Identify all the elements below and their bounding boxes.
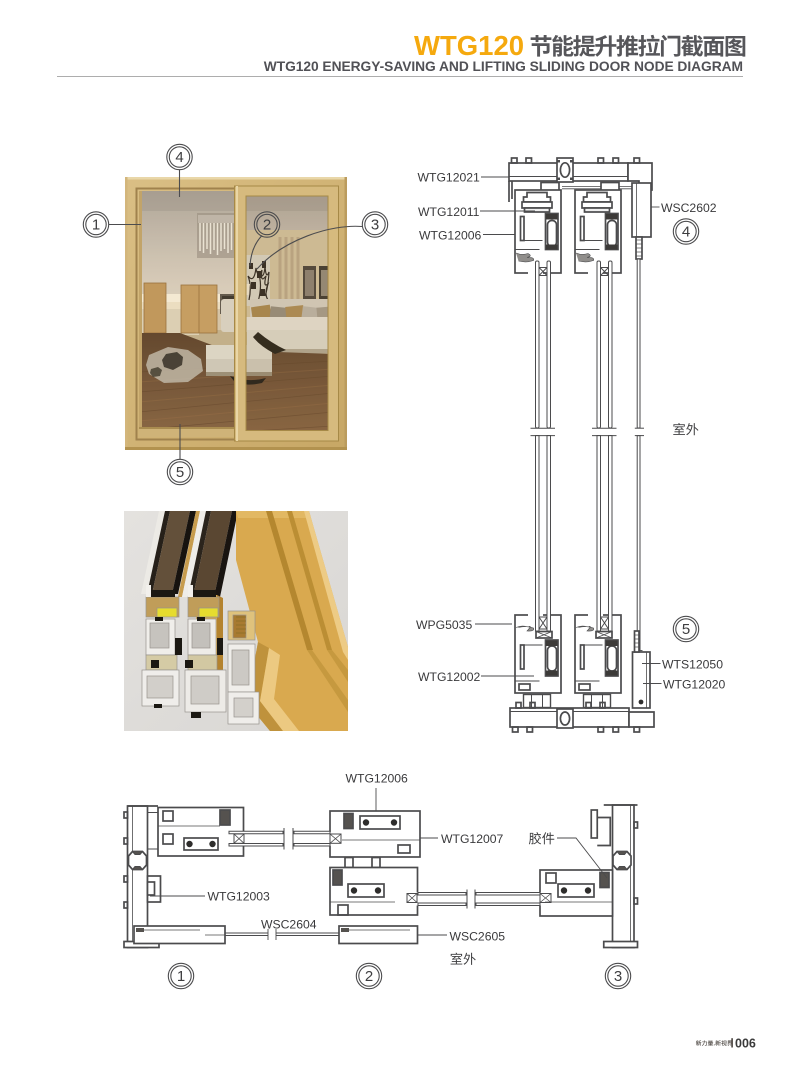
- svg-text:2: 2: [365, 968, 373, 985]
- svg-text:WSC2605: WSC2605: [450, 930, 506, 944]
- svg-text:3: 3: [614, 968, 622, 985]
- svg-text:3: 3: [371, 217, 379, 234]
- svg-text:WTG12006: WTG12006: [419, 229, 482, 243]
- svg-text:WTG12003: WTG12003: [208, 890, 271, 904]
- svg-text:WTG12007: WTG12007: [441, 832, 504, 846]
- svg-text:WTS12050: WTS12050: [662, 658, 723, 672]
- svg-text:WTG12021: WTG12021: [418, 171, 481, 185]
- svg-text:1: 1: [177, 968, 185, 985]
- svg-text:WSC2604: WSC2604: [261, 918, 317, 932]
- svg-text:1: 1: [92, 217, 100, 234]
- svg-text:WTG12020: WTG12020: [663, 678, 726, 692]
- svg-text:4: 4: [175, 149, 183, 166]
- svg-text:WSC2602: WSC2602: [661, 201, 717, 215]
- svg-text:5: 5: [176, 464, 184, 481]
- svg-text:4: 4: [682, 224, 690, 241]
- svg-text:WTG12011: WTG12011: [418, 205, 480, 219]
- svg-text:WTG12006: WTG12006: [346, 772, 409, 786]
- svg-text:5: 5: [682, 621, 690, 638]
- svg-text:006: 006: [735, 1036, 756, 1050]
- svg-text:WTG12002: WTG12002: [418, 670, 481, 684]
- svg-text:2: 2: [263, 217, 271, 234]
- svg-text:WPG5035: WPG5035: [416, 618, 472, 632]
